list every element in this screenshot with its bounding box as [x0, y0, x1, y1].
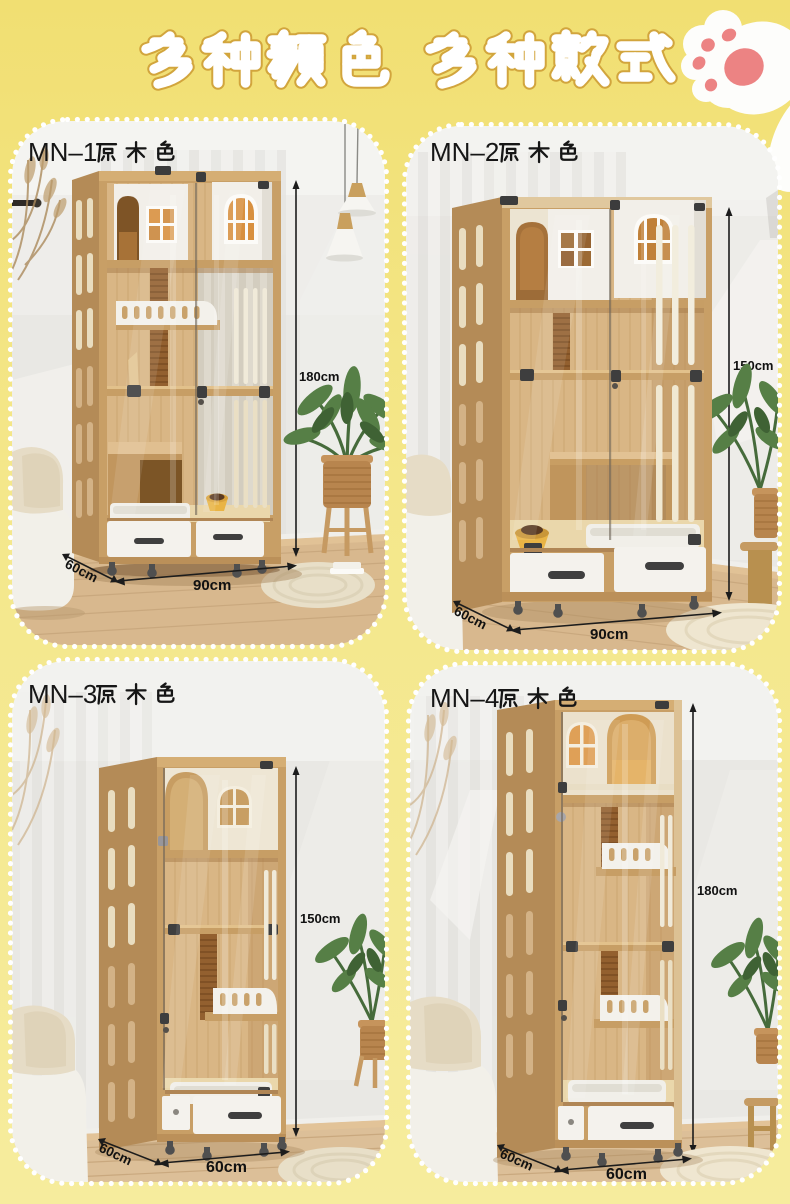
svg-text:90cm: 90cm — [590, 626, 628, 643]
svg-text:60cm: 60cm — [206, 1159, 247, 1176]
svg-text:MN–2: MN–2 — [430, 137, 499, 167]
svg-text:180cm: 180cm — [697, 883, 737, 898]
svg-text:150cm: 150cm — [300, 911, 340, 926]
svg-text:150cm: 150cm — [733, 358, 773, 373]
svg-text:MN–1: MN–1 — [28, 137, 97, 167]
svg-text:MN–4: MN–4 — [430, 683, 499, 713]
svg-text:180cm: 180cm — [299, 369, 339, 384]
svg-text:MN–3: MN–3 — [28, 679, 97, 709]
svg-text:90cm: 90cm — [193, 577, 231, 594]
svg-text:60cm: 60cm — [606, 1166, 647, 1183]
